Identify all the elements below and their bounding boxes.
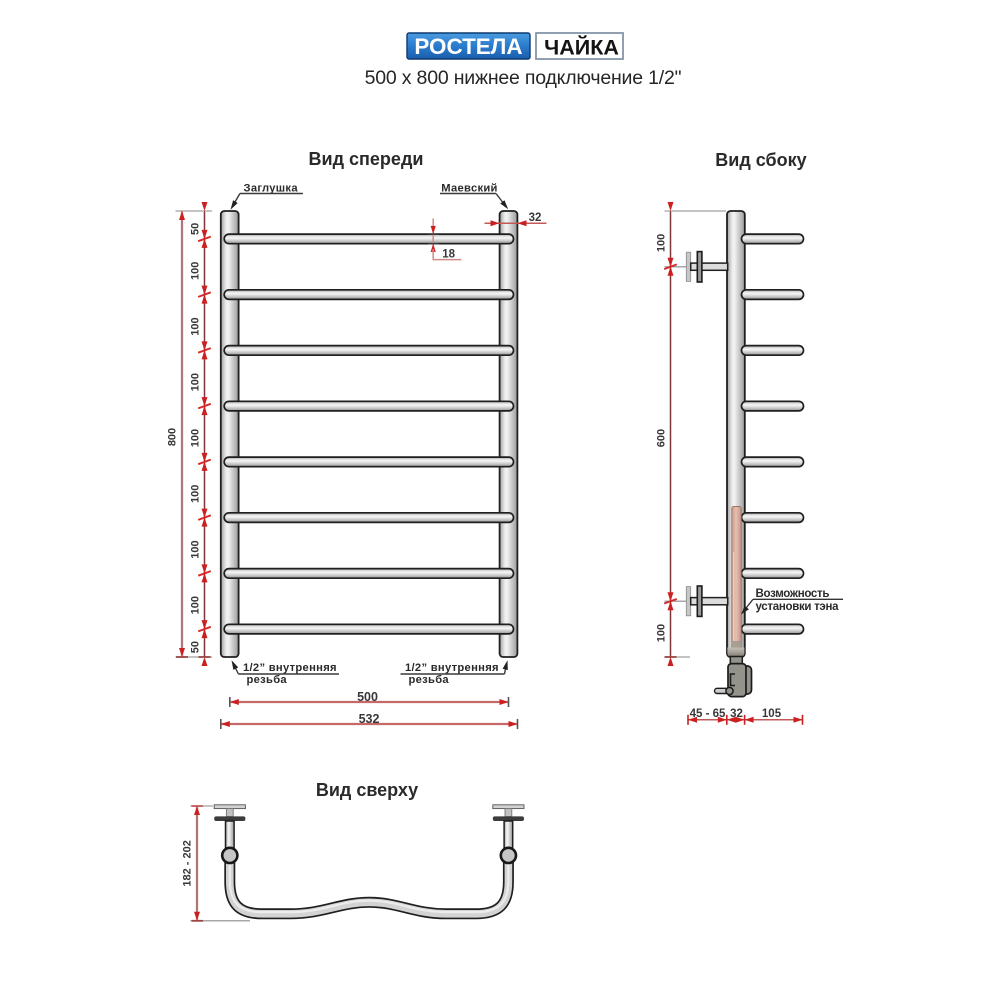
svg-text:установки тэна: установки тэна <box>756 601 840 613</box>
svg-text:105: 105 <box>762 708 782 720</box>
svg-text:32: 32 <box>730 708 743 720</box>
svg-text:600: 600 <box>655 429 667 447</box>
svg-text:резьба: резьба <box>247 674 288 686</box>
svg-text:Вид спереди: Вид спереди <box>309 149 424 169</box>
svg-text:50: 50 <box>189 223 201 235</box>
svg-text:Маевский: Маевский <box>441 182 497 194</box>
svg-text:100: 100 <box>189 596 201 614</box>
svg-text:100: 100 <box>189 540 201 558</box>
svg-text:18: 18 <box>442 249 455 261</box>
svg-text:100: 100 <box>655 624 667 642</box>
svg-text:100: 100 <box>189 485 201 503</box>
svg-text:1/2” внутренняя: 1/2” внутренняя <box>243 662 337 674</box>
svg-text:32: 32 <box>529 212 542 224</box>
svg-text:100: 100 <box>189 317 201 335</box>
svg-text:50: 50 <box>189 641 201 653</box>
svg-text:Вид сверху: Вид сверху <box>316 780 418 800</box>
svg-text:Заглушка: Заглушка <box>244 182 299 194</box>
svg-text:100: 100 <box>189 429 201 447</box>
svg-text:100: 100 <box>655 234 667 252</box>
svg-text:500 x 800 нижнее подключение 1: 500 x 800 нижнее подключение 1/2" <box>365 67 682 89</box>
svg-text:182 - 202: 182 - 202 <box>182 840 194 886</box>
svg-text:резьба: резьба <box>409 674 450 686</box>
svg-text:Вид сбоку: Вид сбоку <box>715 150 806 170</box>
svg-text:ЧАЙКА: ЧАЙКА <box>544 35 619 60</box>
svg-text:1/2” внутренняя: 1/2” внутренняя <box>405 662 499 674</box>
svg-text:532: 532 <box>359 712 380 726</box>
svg-text:500: 500 <box>357 690 378 704</box>
svg-text:45 - 65: 45 - 65 <box>690 708 726 720</box>
svg-text:800: 800 <box>167 428 179 446</box>
svg-text:Возможность: Возможность <box>756 588 830 600</box>
svg-text:100: 100 <box>189 373 201 391</box>
svg-text:РОСТЕЛА: РОСТЕЛА <box>414 34 522 59</box>
svg-text:100: 100 <box>189 262 201 280</box>
